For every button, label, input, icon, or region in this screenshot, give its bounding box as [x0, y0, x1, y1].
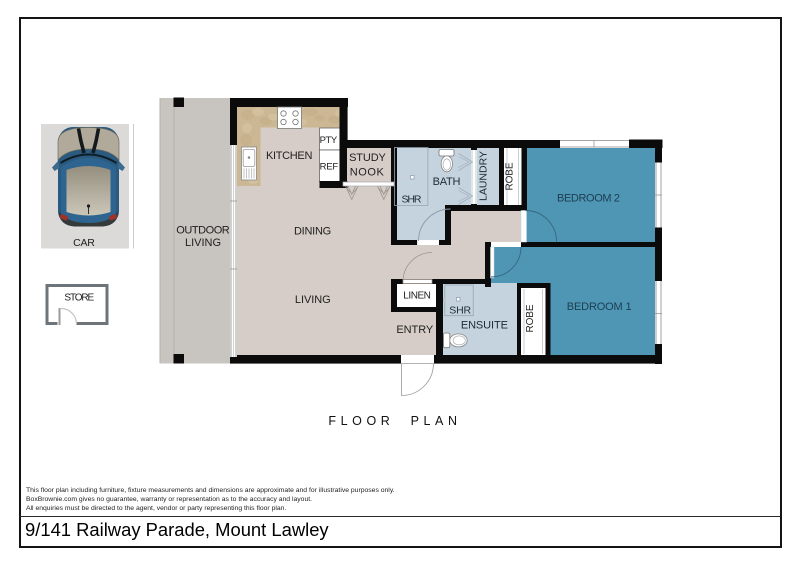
svg-text:BEDROOM 1: BEDROOM 1 — [567, 301, 632, 313]
svg-text:STORE: STORE — [64, 293, 94, 304]
svg-text:REF: REF — [320, 162, 339, 173]
svg-text:DINING: DINING — [294, 225, 331, 237]
svg-text:KITCHEN: KITCHEN — [266, 150, 312, 162]
svg-text:LINEN: LINEN — [403, 291, 431, 302]
svg-text:ENTRY: ENTRY — [396, 324, 433, 336]
svg-text:ROBE: ROBE — [525, 304, 536, 332]
svg-text:NOOK: NOOK — [350, 166, 385, 178]
svg-text:SHR: SHR — [402, 194, 422, 206]
svg-text:STUDY: STUDY — [349, 152, 386, 164]
svg-text:LIVING: LIVING — [295, 294, 331, 306]
svg-text:ENSUITE: ENSUITE — [461, 320, 508, 332]
svg-text:BATH: BATH — [433, 176, 461, 188]
svg-text:LAUNDRY: LAUNDRY — [478, 151, 490, 201]
svg-text:OUTDOOR: OUTDOOR — [176, 225, 230, 237]
svg-text:ROBE: ROBE — [505, 162, 516, 190]
svg-text:PTY: PTY — [320, 135, 338, 146]
svg-text:BEDROOM 2: BEDROOM 2 — [557, 193, 620, 205]
svg-text:CAR: CAR — [73, 237, 95, 249]
svg-text:SHR: SHR — [449, 305, 471, 317]
svg-text:LIVING: LIVING — [185, 237, 221, 249]
